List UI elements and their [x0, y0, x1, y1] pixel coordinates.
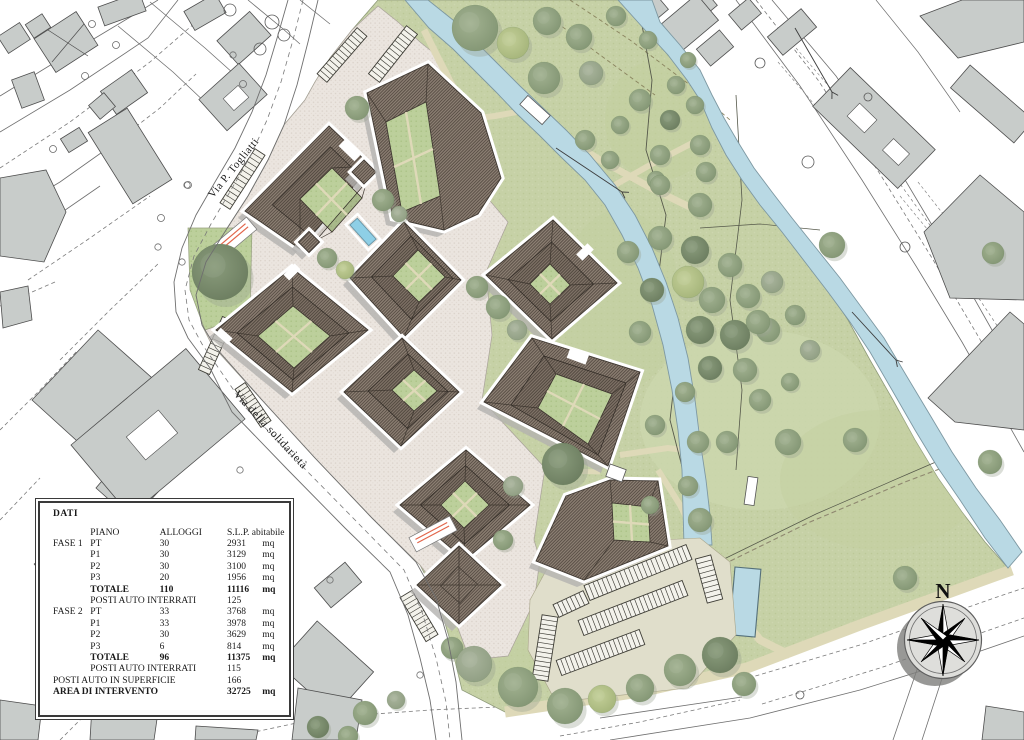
svg-text:N: N — [935, 579, 950, 603]
